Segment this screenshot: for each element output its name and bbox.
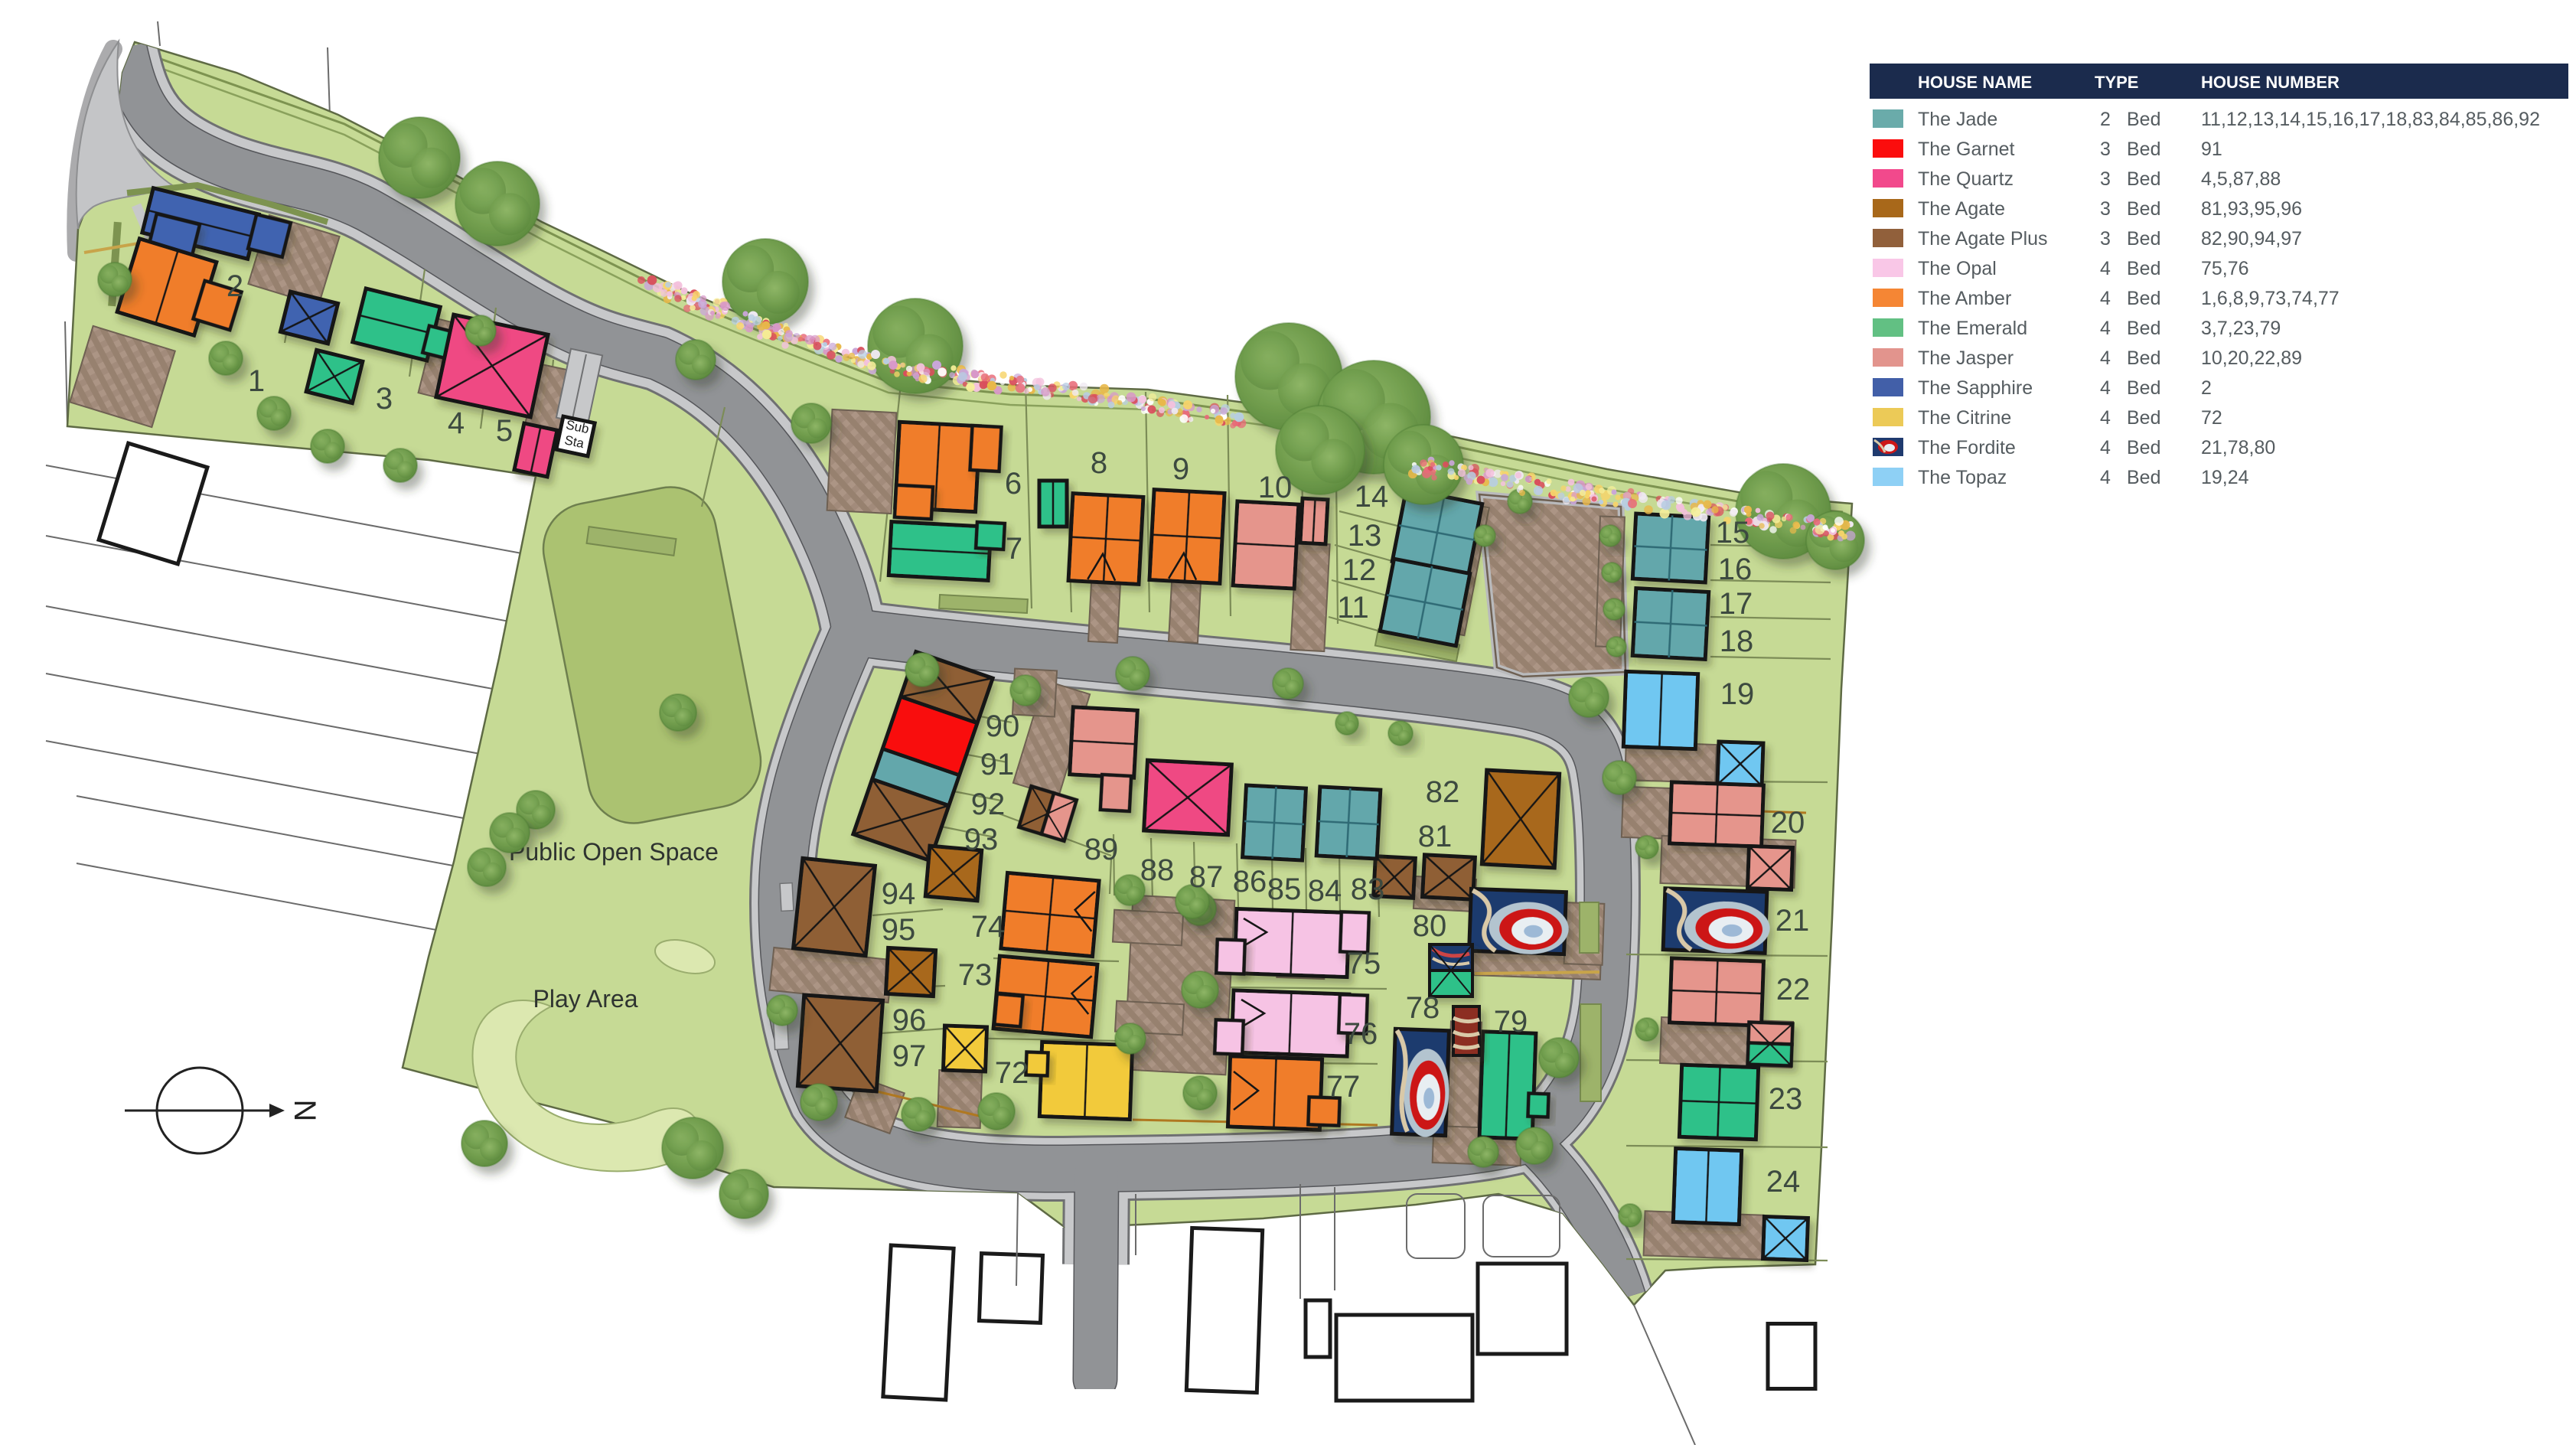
svg-text:80: 80 [1413,909,1447,943]
svg-text:79: 79 [1494,1005,1528,1039]
svg-text:92: 92 [971,788,1006,821]
svg-text:The Sapphire: The Sapphire [1918,377,2033,399]
svg-text:4: 4 [2100,318,2111,339]
svg-text:3: 3 [376,382,393,416]
svg-text:Bed: Bed [2127,288,2160,309]
svg-text:76: 76 [1344,1017,1378,1051]
svg-text:The Jade: The Jade [1918,109,1997,130]
svg-text:N: N [288,1100,321,1122]
svg-text:1: 1 [248,364,265,398]
svg-text:The Topaz: The Topaz [1918,467,2007,488]
svg-text:The Fordite: The Fordite [1918,437,2016,458]
svg-text:16: 16 [1718,553,1753,586]
svg-text:4: 4 [2100,467,2111,488]
svg-text:77: 77 [1326,1070,1361,1104]
svg-text:86: 86 [1233,865,1267,899]
svg-text:89: 89 [1084,833,1119,866]
svg-text:10,20,22,89: 10,20,22,89 [2201,347,2302,369]
svg-text:Bed: Bed [2127,228,2160,250]
svg-text:90: 90 [986,709,1020,743]
svg-text:75,76: 75,76 [2201,258,2249,279]
svg-text:3: 3 [2100,228,2111,250]
svg-text:75: 75 [1347,947,1381,980]
svg-text:88: 88 [1140,853,1175,887]
svg-text:Bed: Bed [2127,258,2160,279]
svg-text:Play Area: Play Area [533,985,638,1013]
svg-text:9: 9 [1172,452,1189,486]
svg-text:8: 8 [1091,446,1107,480]
svg-text:4,5,87,88: 4,5,87,88 [2201,168,2281,190]
svg-text:2: 2 [2201,377,2212,399]
svg-text:83: 83 [1351,873,1385,906]
svg-text:1,6,8,9,73,74,77: 1,6,8,9,73,74,77 [2201,288,2340,309]
svg-text:TYPE: TYPE [2095,73,2138,92]
svg-text:Bed: Bed [2127,198,2160,220]
svg-text:78: 78 [1406,991,1440,1025]
svg-text:24: 24 [1766,1165,1801,1199]
svg-text:74: 74 [971,910,1006,944]
svg-text:23: 23 [1769,1082,1803,1116]
svg-text:10: 10 [1258,471,1293,504]
svg-text:6: 6 [1005,467,1022,501]
svg-text:HOUSE NUMBER: HOUSE NUMBER [2201,73,2340,92]
svg-text:4: 4 [2100,407,2111,429]
svg-text:20: 20 [1771,806,1805,840]
svg-text:Bed: Bed [2127,377,2160,399]
svg-text:96: 96 [892,1003,927,1037]
svg-text:18: 18 [1720,625,1754,658]
svg-text:3: 3 [2100,139,2111,160]
svg-text:73: 73 [958,958,993,992]
svg-text:The Quartz: The Quartz [1918,168,2014,190]
svg-text:The Agate Plus: The Agate Plus [1918,228,2048,250]
svg-text:The Amber: The Amber [1918,288,2011,309]
svg-text:The Jasper: The Jasper [1918,347,2014,369]
svg-text:HOUSE NAME: HOUSE NAME [1918,73,2032,92]
svg-text:14: 14 [1355,480,1389,514]
svg-text:91: 91 [2201,139,2222,160]
svg-text:4: 4 [448,406,465,440]
svg-text:The Emerald: The Emerald [1918,318,2027,339]
svg-text:Bed: Bed [2127,139,2160,160]
svg-text:The Agate: The Agate [1918,198,2005,220]
svg-text:Bed: Bed [2127,437,2160,458]
svg-text:Bed: Bed [2127,318,2160,339]
svg-text:95: 95 [882,913,916,947]
svg-text:2: 2 [2100,109,2111,130]
svg-text:5: 5 [496,414,513,448]
svg-text:97: 97 [892,1039,927,1073]
svg-text:Bed: Bed [2127,347,2160,369]
svg-text:72: 72 [995,1056,1029,1090]
svg-text:4: 4 [2100,258,2111,279]
svg-text:7: 7 [1006,532,1022,566]
svg-text:Public Open Space: Public Open Space [509,838,719,866]
svg-text:19: 19 [1720,677,1755,711]
svg-text:4: 4 [2100,437,2111,458]
svg-text:3: 3 [2100,168,2111,190]
svg-text:94: 94 [882,877,916,911]
svg-text:Bed: Bed [2127,109,2160,130]
svg-text:2: 2 [227,269,243,303]
svg-text:21: 21 [1775,904,1810,938]
svg-text:Bed: Bed [2127,467,2160,488]
svg-text:19,24: 19,24 [2201,467,2249,488]
svg-text:87: 87 [1189,860,1224,894]
svg-text:The Garnet: The Garnet [1918,139,2015,160]
svg-text:13: 13 [1348,519,1382,553]
svg-text:11: 11 [1337,591,1369,625]
svg-text:Bed: Bed [2127,407,2160,429]
svg-text:15: 15 [1716,516,1750,550]
svg-text:4: 4 [2100,377,2111,399]
svg-text:11,12,13,14,15,16,17,18,83,84,: 11,12,13,14,15,16,17,18,83,84,85,86,92 [2201,109,2540,130]
svg-text:82,90,94,97: 82,90,94,97 [2201,228,2302,250]
svg-text:81,93,95,96: 81,93,95,96 [2201,198,2302,220]
svg-text:The Citrine: The Citrine [1918,407,2011,429]
svg-text:12: 12 [1342,553,1377,587]
svg-text:3,7,23,79: 3,7,23,79 [2201,318,2281,339]
svg-text:Bed: Bed [2127,168,2160,190]
svg-text:21,78,80: 21,78,80 [2201,437,2275,458]
svg-text:4: 4 [2100,347,2111,369]
svg-text:17: 17 [1719,587,1753,621]
svg-text:85: 85 [1267,873,1302,906]
svg-text:The Opal: The Opal [1918,258,1997,279]
svg-text:72: 72 [2201,407,2222,429]
svg-text:82: 82 [1426,775,1460,809]
svg-text:4: 4 [2100,288,2111,309]
svg-text:81: 81 [1418,820,1453,853]
svg-text:22: 22 [1776,973,1811,1006]
svg-text:3: 3 [2100,198,2111,220]
svg-text:91: 91 [980,748,1015,781]
svg-text:93: 93 [964,823,999,856]
svg-text:84: 84 [1308,874,1342,908]
